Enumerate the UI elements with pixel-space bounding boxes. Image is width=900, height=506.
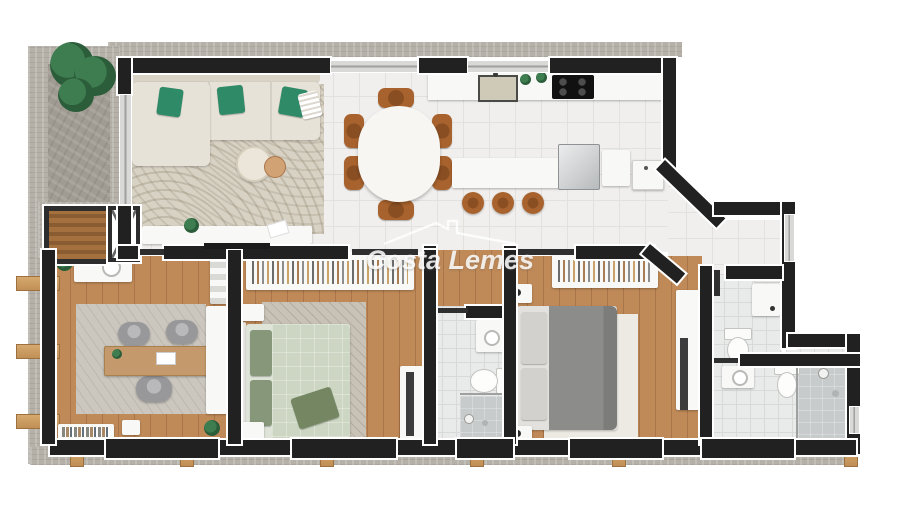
window-bottom xyxy=(104,437,220,460)
cooktop xyxy=(552,75,594,99)
suite-toilet-bowl xyxy=(777,372,797,398)
kitchen-cabinet xyxy=(602,150,630,186)
window-right xyxy=(784,214,795,262)
watermark-text: Costa Lemes xyxy=(352,246,548,274)
wall-wc-top xyxy=(726,266,782,279)
bath2-basin xyxy=(484,330,500,346)
wall-office-left xyxy=(42,250,55,444)
office-sideboard xyxy=(206,306,230,414)
office-chair xyxy=(166,320,198,344)
kitchen-sink xyxy=(478,75,518,102)
wall-top xyxy=(419,58,467,73)
counter-plant xyxy=(536,72,547,83)
bath2-door-leaf xyxy=(438,308,468,313)
wall-living-left xyxy=(118,58,131,94)
bedroom2-nightstand xyxy=(240,422,264,439)
bar-stool xyxy=(522,192,544,214)
wall-office-bedroom2 xyxy=(228,250,241,444)
bath2-toilet-bowl xyxy=(470,369,498,393)
master-pillow xyxy=(521,312,547,364)
bar-stool xyxy=(492,192,514,214)
laundry-tub-faucet xyxy=(770,306,775,311)
console-plant xyxy=(184,218,199,233)
bath2-shower-drain xyxy=(482,420,488,426)
kitchen-counter xyxy=(428,72,666,100)
window-top xyxy=(467,60,552,73)
bath2-shower-head xyxy=(464,414,474,424)
kitchen-island xyxy=(452,158,564,188)
bedroom2-pillow xyxy=(250,330,272,376)
coffee-table-small xyxy=(264,156,286,178)
dining-table xyxy=(358,106,440,202)
bedroom2-pillow xyxy=(250,380,272,426)
wall-top xyxy=(550,58,676,73)
window-top xyxy=(330,60,421,73)
window-right xyxy=(849,406,860,434)
suite-bath-door-leaf xyxy=(714,358,738,363)
wall-bath2-left xyxy=(424,250,436,444)
dining-chair xyxy=(378,88,414,108)
counter-plant xyxy=(520,74,531,85)
wall-bath2-top xyxy=(466,306,504,318)
bedroom2-tv xyxy=(406,372,414,436)
master-duvet xyxy=(549,306,617,430)
master-pillow xyxy=(521,368,547,420)
top-ledge xyxy=(108,42,682,57)
office-box xyxy=(122,420,140,435)
office-laptop xyxy=(156,352,176,365)
bath2-shower-glass xyxy=(460,393,506,395)
window-bottom xyxy=(290,437,398,460)
wall-mid xyxy=(118,246,138,259)
suite-shower-glass xyxy=(796,362,798,444)
dining-chair xyxy=(378,200,414,220)
suite-shower-drain xyxy=(832,390,839,397)
laundry-tub xyxy=(752,284,780,316)
master-tv xyxy=(680,338,688,410)
bedroom2-nightstand xyxy=(240,304,264,321)
wc-door-leaf xyxy=(714,270,720,296)
wall-wc-bath-divider xyxy=(740,354,860,366)
balcony-slider-door xyxy=(119,94,132,208)
office-desk-plant xyxy=(112,349,122,359)
watermark-roof-icon xyxy=(380,218,520,246)
balcony-plant-leaf xyxy=(58,78,94,112)
wall-top xyxy=(120,58,330,73)
cushion-green xyxy=(217,85,246,116)
tv xyxy=(204,243,270,249)
suite-shower-head xyxy=(818,368,829,379)
wall-kitchen-right xyxy=(663,58,676,174)
office-books xyxy=(62,427,110,437)
entry-door-leaf xyxy=(140,249,164,255)
window-bottom xyxy=(455,437,515,460)
suite-basin xyxy=(732,370,748,386)
floor-plan: Costa Lemes xyxy=(0,0,900,506)
office-chair xyxy=(118,322,150,346)
watermark: Costa Lemes xyxy=(352,218,548,274)
refrigerator xyxy=(558,144,600,190)
wall-bath2-right xyxy=(504,250,516,444)
window-bottom xyxy=(568,437,664,460)
cushion-green xyxy=(156,86,184,117)
bar-stool xyxy=(462,192,484,214)
utility-tub-faucet xyxy=(644,166,648,170)
office-chair xyxy=(136,376,172,402)
wall-right-lower xyxy=(847,334,860,454)
window-bottom xyxy=(700,437,796,460)
wall-master-right xyxy=(700,266,712,444)
master-wardrobe-clothes xyxy=(558,260,652,282)
office-plant-2 xyxy=(204,420,220,436)
